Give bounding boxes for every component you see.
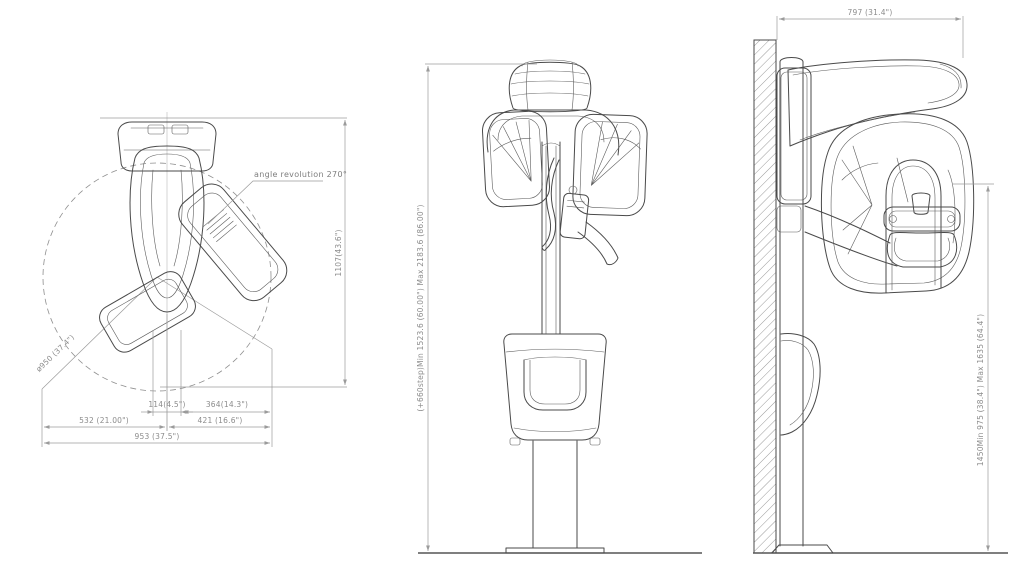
tubehead-pod-front (482, 110, 551, 207)
dim-chinrest-height-label: 1450Min 975 (38.4") Max 1635 (64.4") (976, 314, 985, 466)
swing-arm (578, 222, 618, 265)
base-plate-front (506, 548, 604, 553)
gantry-side (821, 114, 973, 293)
support-arm-side (805, 206, 897, 266)
dim-column-to-front-label: 364(14.3") (206, 400, 248, 409)
sweep-boundary-left (42, 277, 157, 389)
angle-revolution-label: angle revolution 270° (254, 170, 347, 179)
column-lower-bracket (777, 206, 801, 232)
dim-total-depth-label: 953 (37.5") (135, 432, 180, 441)
pod-grille (204, 210, 237, 242)
column-foot (772, 545, 833, 553)
handle-box-side (781, 333, 820, 435)
carriage-column-front (542, 142, 560, 334)
wall-section (754, 40, 776, 553)
handle-box-front (504, 334, 606, 445)
top-view-drawing: angle revolution 270° 1107(43.6") ø950 (… (34, 112, 347, 447)
front-view-drawing: (+660step)Min 1523.6 (60.00") Max 2183.6… (416, 60, 702, 553)
dim-depth-label: 1107(43.6") (334, 229, 343, 276)
column-mount-plate (777, 68, 811, 204)
three-view-dimensional-drawing: angle revolution 270° 1107(43.6") ø950 (… (0, 0, 1024, 573)
sensor-pod-front (572, 114, 647, 216)
c-arm-bridge (487, 110, 619, 155)
chinrest-bracket (560, 193, 589, 239)
chinrest-housing (887, 233, 956, 268)
positioning-lever (542, 158, 559, 250)
overhead-arm-side (788, 60, 967, 146)
rotation-motor-cap (509, 60, 591, 112)
wall-hatch (754, 40, 776, 553)
lower-column-front (506, 441, 604, 553)
handle-u-outline (524, 360, 586, 410)
dim-wall-to-front-label: 797 (31.4") (848, 8, 893, 17)
dim-column-width-label: 114(4.5") (148, 400, 185, 409)
dim-height-range-label: (+660step)Min 1523.6 (60.00") Max 2183.6… (416, 204, 425, 411)
dim-back-width-label: 532 (21.00") (79, 416, 129, 425)
tubehead-pod-top (95, 267, 200, 356)
sweep-boundary-right (157, 277, 272, 349)
chinrest-side (884, 158, 960, 267)
technical-drawing-canvas: angle revolution 270° 1107(43.6") ø950 (… (0, 0, 1024, 573)
front-view-dimensions: (+660step)Min 1523.6 (60.00") Max 2183.6… (416, 64, 537, 551)
dim-diameter-label: ø950 (37.4") (34, 333, 76, 374)
positioning-rod (897, 158, 908, 202)
side-view-drawing: 797 (31.4") 1450Min 975 (38.4") Max 1635… (753, 8, 1008, 553)
dim-front-width-label: 421 (16.6") (198, 416, 243, 425)
angle-revolution-annotation: angle revolution 270° (208, 170, 347, 224)
chinrest-table (884, 207, 960, 231)
